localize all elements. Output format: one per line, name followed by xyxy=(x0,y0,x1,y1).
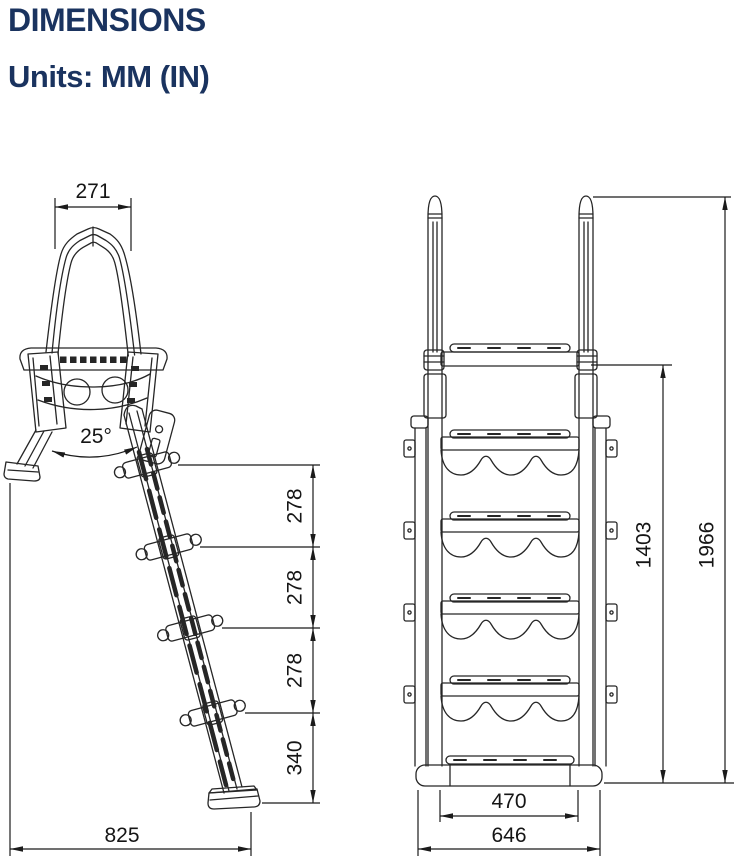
dim-label-646: 646 xyxy=(491,824,526,847)
front-platform-step xyxy=(441,344,579,366)
side-inclined-rail xyxy=(112,405,260,809)
dim-label-271: 271 xyxy=(75,180,110,203)
side-front-leg xyxy=(4,430,52,481)
dim-1966: 1966 xyxy=(593,197,731,783)
page: DIMENSIONS Units: MM (IN) xyxy=(0,0,737,862)
dim-label-470: 470 xyxy=(491,790,526,813)
dim-label-825: 825 xyxy=(104,824,139,847)
front-view-dimensions: 1966 1403 470 646 xyxy=(418,197,734,856)
front-steps xyxy=(404,430,617,721)
angle-25: 25° xyxy=(52,425,137,457)
dim-label-340: 340 xyxy=(284,740,307,775)
dim-label-278-3: 278 xyxy=(284,653,307,688)
front-outer-rails xyxy=(411,416,610,766)
side-handle-arch xyxy=(46,227,141,356)
dim-label-1966: 1966 xyxy=(696,522,719,569)
dim-label-25deg: 25° xyxy=(80,425,112,448)
dim-label-278-2: 278 xyxy=(284,570,307,605)
technical-drawing: 271 25° 278 278 278 340 xyxy=(0,0,737,862)
dim-label-278-1: 278 xyxy=(284,488,307,523)
front-view-ladder xyxy=(404,196,617,786)
front-base xyxy=(416,756,602,786)
dim-label-1403: 1403 xyxy=(633,522,656,569)
side-view-ladder xyxy=(4,227,260,809)
dim-470: 470 xyxy=(440,790,578,822)
